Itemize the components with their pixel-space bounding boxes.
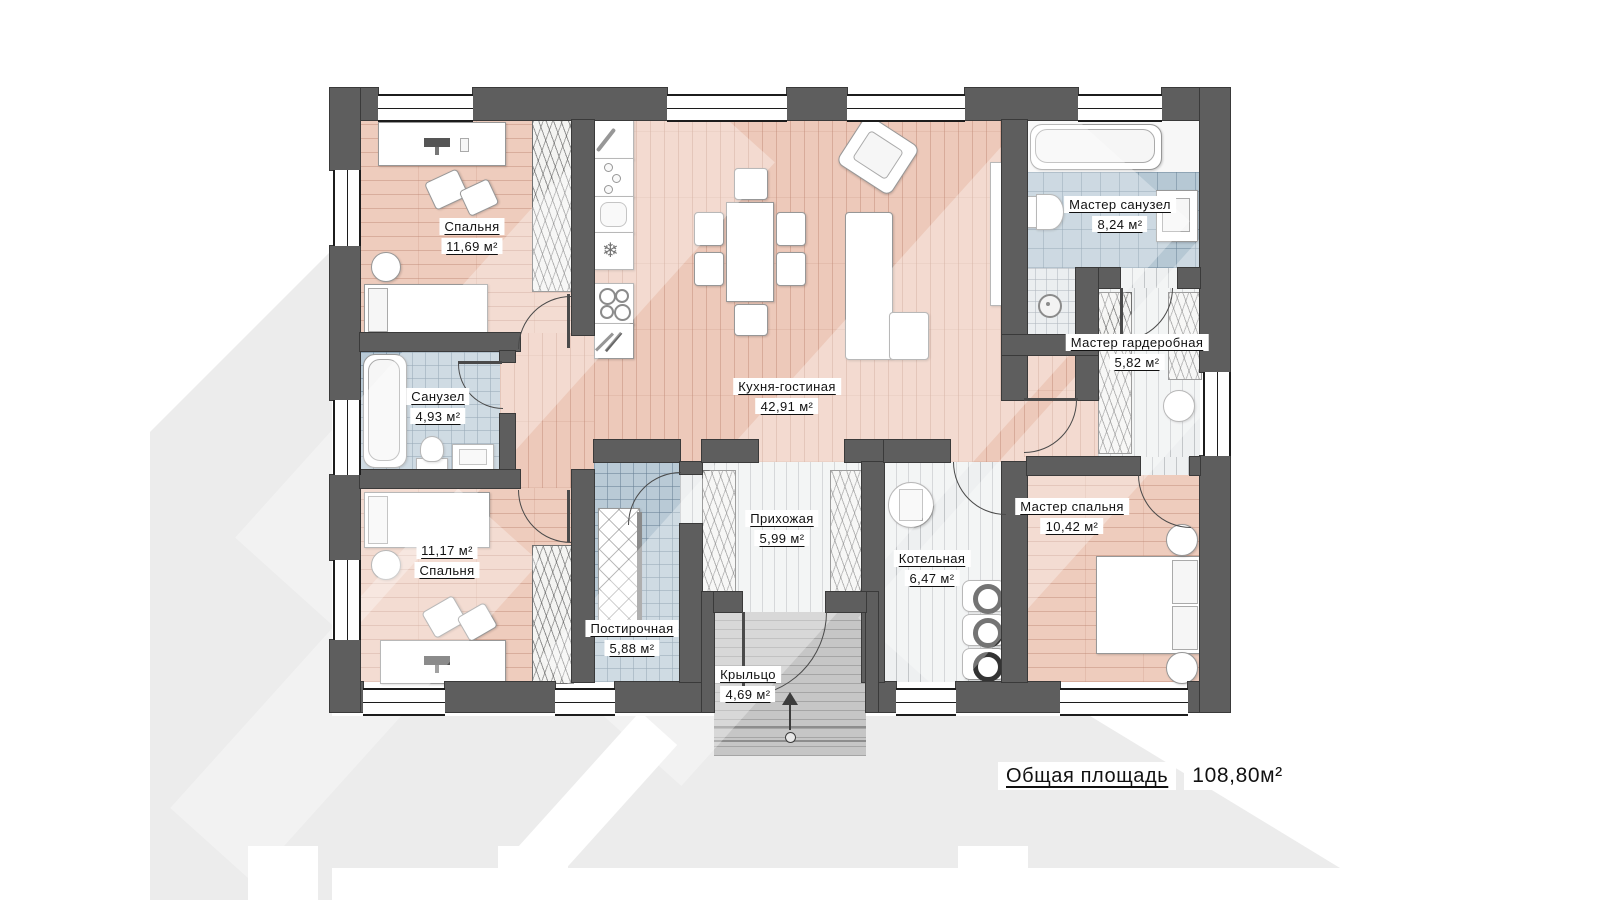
- wall-segment: [1178, 268, 1200, 288]
- room-name: Прихожая: [745, 510, 818, 527]
- room-label-master-wardrobe: Мастер гардеробная 5,82 м²: [1066, 334, 1209, 373]
- cabinet-handle: [637, 512, 642, 624]
- burner-icon: [614, 304, 631, 321]
- dining-table: [726, 202, 774, 302]
- desk-item: [460, 138, 469, 152]
- wall-segment: [866, 592, 878, 712]
- room-label-bedroom-2: 11,17 м² Спальня: [414, 542, 479, 581]
- floor-plan-canvas: ❄: [0, 0, 1600, 900]
- room-area: 8,24 м²: [1093, 216, 1148, 233]
- burner-icon: [599, 288, 616, 305]
- wall-segment: [956, 682, 1060, 712]
- window: [333, 560, 361, 640]
- wall-segment: [445, 682, 555, 712]
- shadow-notch: [248, 846, 318, 900]
- hallway-wardrobe-hatch: [702, 470, 736, 594]
- side-table: [371, 550, 401, 580]
- room-name: Мастер санузел: [1064, 196, 1176, 213]
- bathtub-basin: [368, 359, 400, 461]
- room-label-hallway: Прихожая 5,99 м²: [745, 510, 818, 549]
- wall-segment: [360, 333, 520, 351]
- dining-chair: [734, 304, 768, 336]
- sofa: [845, 212, 893, 360]
- wall-segment: [500, 414, 515, 470]
- room-label-bathroom: Санузел 4,93 м²: [406, 388, 469, 427]
- window: [1203, 372, 1231, 456]
- wall-segment: [594, 440, 680, 462]
- door-leaf: [567, 294, 570, 348]
- wall-segment: [702, 592, 714, 712]
- wall-segment: [360, 470, 520, 488]
- kitchen-counter: [594, 120, 634, 160]
- nightstand: [1166, 524, 1198, 556]
- boiler-tank-ring: [973, 618, 1003, 648]
- pillow: [368, 288, 388, 332]
- hallway-wardrobe-hatch: [830, 470, 864, 594]
- wall-segment: [965, 88, 1078, 120]
- room-area: 11,69 м²: [441, 238, 503, 255]
- master-bedroom-door-floor: [1140, 457, 1190, 475]
- wall-segment: [500, 351, 515, 362]
- room-label-porch: Крыльцо 4,69 м²: [715, 666, 781, 705]
- shower-head-icon: [1038, 294, 1062, 318]
- wall-segment: [878, 682, 896, 712]
- room-name: Крыльцо: [715, 666, 781, 683]
- wall-segment: [1002, 120, 1027, 400]
- wall-segment: [680, 524, 702, 682]
- window: [896, 688, 956, 716]
- monitor-icon: [424, 138, 450, 147]
- boiler-tank-ring: [973, 584, 1003, 614]
- wall-segment: [1200, 456, 1230, 712]
- wardrobe-hatch: [532, 120, 574, 292]
- window: [333, 170, 361, 246]
- pillow: [1172, 606, 1198, 650]
- wall-segment: [884, 440, 950, 462]
- side-table: [371, 252, 401, 282]
- drop-icon: [612, 174, 621, 183]
- water-heater-core: [899, 489, 923, 521]
- monitor-stand: [435, 665, 439, 673]
- door-leaf: [1120, 288, 1123, 340]
- room-area: 5,99 м²: [755, 530, 810, 547]
- laundry-cabinet: [598, 508, 640, 630]
- room-name: Санузел: [406, 388, 469, 405]
- dining-chair: [776, 212, 806, 246]
- room-name: Кухня-гостиная: [733, 378, 841, 395]
- toilet-bowl: [1036, 194, 1064, 230]
- wall-segment: [845, 440, 884, 462]
- window: [1078, 94, 1162, 122]
- snowflake-icon: ❄: [602, 238, 619, 263]
- wall-segment: [473, 88, 667, 120]
- entry-arrow-base: [785, 732, 796, 743]
- room-area: 4,93 м²: [411, 408, 466, 425]
- shower-head-dot: [1046, 302, 1050, 306]
- pillow: [368, 496, 388, 544]
- dining-chair: [694, 252, 724, 286]
- room-name: Мастер спальня: [1015, 498, 1129, 515]
- room-label-laundry: Постирочная 5,88 м²: [585, 620, 678, 659]
- window: [378, 94, 473, 122]
- room-label-master-bathroom: Мастер санузел 8,24 м²: [1064, 196, 1176, 235]
- monitor-icon: [424, 656, 450, 665]
- window: [555, 688, 615, 716]
- master-bathtub-basin: [1035, 129, 1155, 163]
- pillow: [1172, 560, 1198, 604]
- wall-segment: [1027, 457, 1140, 475]
- total-area-value: 108,80м²: [1184, 761, 1290, 790]
- dining-chair: [734, 168, 768, 200]
- wall-segment: [330, 246, 360, 400]
- room-name: Мастер гардеробная: [1066, 334, 1209, 351]
- window: [667, 94, 787, 122]
- room-name: Котельная: [894, 550, 971, 567]
- room-area: 42,91 м²: [756, 398, 819, 415]
- burner-icon: [615, 289, 629, 303]
- kitchen-sink-basin: [600, 202, 627, 227]
- sink-basin: [459, 449, 487, 465]
- room-label-kitchen-living: Кухня-гостиная 42,91 м²: [733, 378, 841, 417]
- wall-segment: [330, 640, 360, 712]
- wall-segment: [1200, 88, 1230, 372]
- boiler-tank-ring: [973, 652, 1003, 682]
- door-leaf: [567, 490, 570, 542]
- stool: [1163, 390, 1195, 422]
- wall-segment: [1190, 457, 1200, 475]
- room-name: Спальня: [414, 562, 479, 579]
- room-area: 5,82 м²: [1110, 354, 1165, 371]
- window: [1060, 688, 1188, 716]
- room-area: 11,17 м²: [416, 542, 478, 559]
- window: [363, 688, 445, 716]
- laundry-door-floor: [680, 474, 702, 524]
- wall-segment: [680, 462, 702, 474]
- burner-icon: [600, 305, 614, 319]
- window: [333, 400, 361, 475]
- wall-segment: [330, 475, 360, 560]
- dining-chair: [694, 212, 724, 246]
- window: [847, 94, 965, 122]
- wall-segment: [330, 88, 360, 170]
- monitor-stand: [435, 147, 439, 155]
- total-area: Общая площадь108,80м²: [998, 764, 1291, 788]
- nightstand: [1166, 652, 1198, 684]
- door-leaf: [1024, 398, 1078, 401]
- entry-arrow-stem: [789, 704, 791, 730]
- room-label-master-bedroom: Мастер спальня 10,42 м²: [1015, 498, 1129, 537]
- room-label-boiler-room: Котельная 6,47 м²: [894, 550, 971, 589]
- wall-segment: [714, 592, 742, 612]
- wall-segment: [572, 120, 594, 335]
- dining-chair: [776, 252, 806, 286]
- wall-segment: [615, 682, 702, 712]
- drop-icon: [604, 163, 613, 172]
- sofa-chaise: [889, 312, 929, 360]
- room-area: 5,88 м²: [605, 640, 660, 657]
- shadow-notch: [958, 846, 1028, 900]
- room-label-bedroom-1: Спальня 11,69 м²: [439, 218, 504, 257]
- wardrobe-door-floor: [1120, 268, 1178, 288]
- drop-icon: [604, 185, 613, 194]
- room-name: Постирочная: [585, 620, 678, 637]
- wardrobe-hatch: [532, 545, 574, 684]
- room-name: Спальня: [439, 218, 504, 235]
- room-area: 10,42 м²: [1041, 518, 1104, 535]
- wall-segment: [787, 88, 847, 120]
- room-area: 4,69 м²: [721, 686, 776, 703]
- toilet-bowl: [420, 436, 444, 462]
- total-area-label: Общая площадь: [998, 762, 1176, 790]
- room-area: 6,47 м²: [905, 570, 960, 587]
- wall-segment: [702, 440, 758, 462]
- wall-segment: [826, 592, 866, 612]
